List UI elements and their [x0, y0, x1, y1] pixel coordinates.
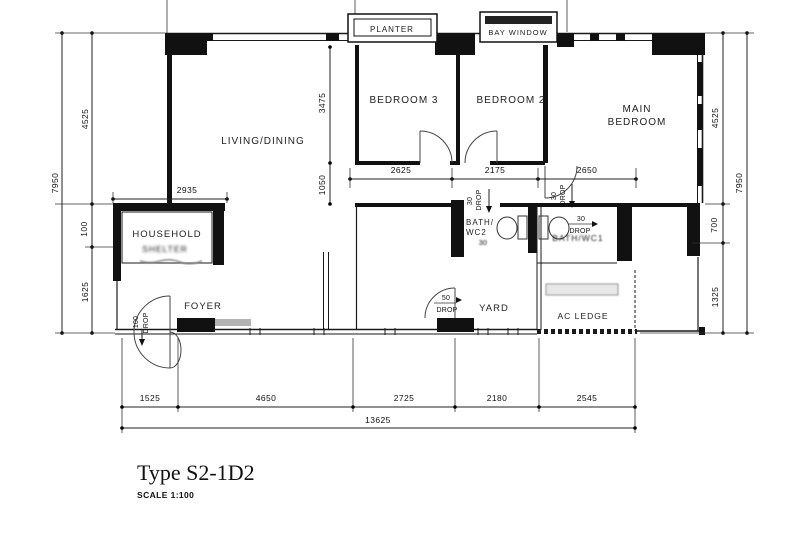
entrance-door-leaf2-arc	[170, 332, 181, 368]
drop-wc1-entry-word: DROP	[560, 184, 567, 205]
drop-wc1-inner-word: DROP	[569, 228, 590, 235]
bedroom2-label: BEDROOM 2	[476, 95, 545, 106]
yard-label: YARD	[479, 303, 509, 314]
bath-wc2-label-line1: BATH/	[466, 218, 494, 227]
interior-walls	[324, 45, 701, 331]
entrance-door-arc	[134, 296, 170, 368]
dim-corridor-depth: 1050	[317, 175, 327, 196]
living-dining-label: LIVING/DINING	[221, 136, 305, 147]
dim-left-overall: 7950	[50, 173, 60, 194]
household-label: HOUSEHOLD	[132, 229, 201, 240]
bedroom3-label: BEDROOM 3	[369, 95, 438, 106]
planter-box: PLANTER	[348, 14, 437, 42]
plan-type-title: Type S2-1D2	[137, 460, 255, 485]
dimension-left: 7950 4525 100 1625	[50, 31, 165, 335]
drop-entrance-value: 100	[133, 316, 140, 328]
drop-wc2-inner-value: 30	[479, 240, 487, 247]
dim-left-mid: 100	[79, 221, 89, 236]
ac-ledge-label: AC LEDGE	[558, 311, 609, 321]
bedroom3-door-arc	[420, 131, 452, 163]
plan-scale-label: SCALE 1:100	[137, 490, 194, 500]
main-bedroom-label-line1: MAIN	[623, 104, 652, 115]
dimension-mid-chain: 2625 2175 2650	[348, 165, 638, 188]
dim-bedroom3-depth: 3475	[317, 93, 327, 114]
dimension-interior-vertical: 3475 1050	[317, 45, 332, 206]
dim-mid-seg3: 2650	[577, 165, 598, 175]
door-arcs	[134, 131, 577, 368]
household-shelter-label: SHELTER	[142, 244, 188, 254]
smudged-details	[140, 260, 618, 295]
dim-bottom-seg5: 2545	[577, 393, 598, 403]
drop-wc1-inner-value: 30	[577, 216, 585, 223]
dimension-bottom-chain: 1525 4650 2725 2180 2545 13625	[120, 338, 637, 433]
bay-window-box: BAY WINDOW	[480, 12, 557, 42]
dim-household-width: 2935	[177, 185, 198, 195]
dim-bottom-seg1: 1525	[140, 393, 161, 403]
dim-right-overall: 7950	[734, 173, 744, 194]
dim-mid-seg2: 2175	[485, 165, 506, 175]
drop-annotation-wc2: 30 DROP	[467, 189, 492, 213]
drop-yard-word: DROP	[436, 307, 457, 314]
drop-yard-value: 50	[442, 295, 450, 302]
main-bedroom-label-line2: BEDROOM	[608, 117, 667, 128]
dim-bottom-overall: 13625	[365, 415, 391, 425]
bath-wc2-label-line2: WC2	[466, 228, 487, 237]
dim-right-mid: 700	[709, 217, 719, 232]
wc2-toilet-icon	[497, 216, 527, 239]
dim-mid-seg1: 2625	[391, 165, 412, 175]
dim-bottom-seg2: 4650	[256, 393, 277, 403]
drop-wc2-word: DROP	[476, 189, 483, 210]
bay-window-label: BAY WINDOW	[488, 28, 547, 37]
dim-left-upper: 4525	[80, 109, 90, 130]
drop-annotation-wc2-inner: 30	[479, 240, 487, 247]
dim-left-lower: 1625	[80, 282, 90, 303]
drop-annotation-yard: 50 DROP	[434, 295, 462, 314]
dim-bottom-seg4: 2180	[487, 393, 508, 403]
title-block: Type S2-1D2 SCALE 1:100	[137, 460, 255, 500]
planter-label: PLANTER	[370, 25, 414, 34]
floor-plan-drawing: PLANTER BAY WINDOW LIVING/DINING BED	[0, 0, 800, 533]
drop-entrance-word: DROP	[143, 312, 150, 333]
drop-wc2-value: 30	[467, 197, 474, 205]
dim-bottom-seg3: 2725	[394, 393, 415, 403]
dim-right-upper: 4525	[710, 108, 720, 129]
floor-plan-page: PLANTER BAY WINDOW LIVING/DINING BED	[0, 0, 800, 533]
foyer-label: FOYER	[184, 301, 222, 312]
bedroom2-door-arc	[465, 131, 497, 163]
dim-right-lower: 1325	[710, 287, 720, 308]
drop-wc1-entry-value: 30	[551, 192, 558, 200]
